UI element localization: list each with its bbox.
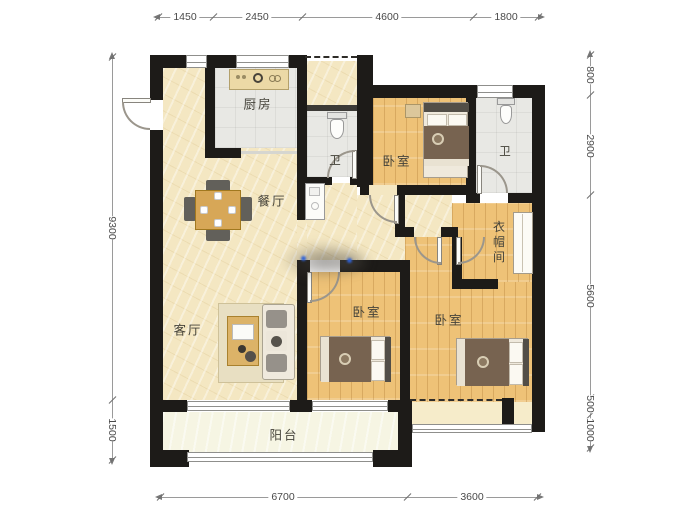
wall-topright-a — [357, 85, 477, 98]
bed-pillow — [448, 114, 467, 126]
dim-label: 1450 — [170, 11, 199, 23]
decor-bowl-icon — [245, 351, 256, 362]
dim-label: 1800 — [491, 11, 520, 23]
bed-pillow — [509, 342, 523, 363]
sofa-cushion-icon — [266, 354, 287, 372]
wall-bath1-top — [307, 105, 357, 111]
window-balcony — [187, 452, 373, 462]
bed-headboard — [385, 337, 391, 382]
dim-label: 5600 — [581, 284, 599, 307]
window-bay — [412, 424, 532, 433]
window-kitchen — [236, 55, 289, 68]
bed-icon — [456, 338, 528, 385]
dashed-opening-bay — [410, 399, 502, 401]
wall-balcony-top-b — [290, 400, 312, 412]
bedroom-right-label: 卧室 — [434, 310, 463, 329]
wall-topright-b — [513, 85, 545, 98]
wall-bedtop-bottom-b — [397, 185, 470, 195]
dim-label: 2900 — [581, 134, 599, 157]
wall-left-main — [150, 129, 163, 467]
wall-bay-stub — [502, 398, 514, 426]
bed-deco-pillow — [339, 353, 351, 365]
dim-label: 800 — [581, 66, 599, 84]
washbasin-drain-icon — [311, 202, 319, 210]
bed-blanket — [424, 126, 469, 159]
sofa-cushion-icon — [266, 310, 287, 328]
bed-icon — [320, 336, 390, 381]
wall-top-a — [150, 55, 186, 68]
dim-label: 4600 — [372, 11, 401, 23]
dim-label: 9300 — [103, 216, 121, 239]
dim-label: 6700 — [268, 491, 297, 503]
bedroom-top-door-gap — [369, 185, 397, 195]
wall-right-outer — [532, 98, 545, 432]
dim-label: 500 — [581, 395, 599, 413]
place-setting-icon — [228, 206, 236, 214]
bed-foot-stripe — [424, 159, 469, 166]
dining-chair-icon — [206, 229, 230, 241]
dim-label: 2450 — [242, 11, 271, 23]
bed-pillow — [371, 340, 385, 360]
bed-pillow — [427, 114, 447, 126]
bed-pillow — [509, 364, 523, 385]
watermark-dot — [347, 258, 352, 263]
wall-corridor-b — [441, 227, 458, 237]
bedroom-top-label: 卧室 — [382, 151, 411, 170]
toilet-icon — [500, 105, 512, 124]
wall-bath2-bottom-a — [466, 193, 480, 203]
wardrobe-rail-icon — [522, 214, 523, 272]
balcony-sliding-door — [187, 401, 290, 411]
place-setting-icon — [200, 206, 208, 214]
wall-bath1-right — [357, 55, 373, 187]
entry-door-arc — [122, 102, 150, 130]
wall-top-b — [207, 55, 236, 68]
washbasin-sink-icon — [309, 187, 320, 196]
dim-label: 3600 — [457, 491, 486, 503]
wardrobe-icon — [513, 212, 533, 274]
wall-balcony-corner-left — [150, 450, 189, 467]
watermark-dot — [301, 256, 306, 261]
wall-kitchen-bottom — [205, 148, 241, 158]
burner-icon — [253, 73, 263, 83]
bath1-label: 卫 — [329, 152, 341, 168]
wall-balcony-right — [398, 400, 412, 452]
dashed-opening-top — [305, 56, 357, 58]
place-setting-icon — [214, 219, 222, 227]
toilet-icon — [327, 112, 347, 119]
bed-foot-stripe — [457, 339, 465, 386]
wall-balcony-top-a — [163, 400, 187, 412]
wall-cloakroom-bottom — [452, 279, 498, 289]
faucet-dot-icon — [242, 75, 246, 79]
place-setting-icon — [214, 192, 222, 200]
toilet-icon — [330, 119, 344, 139]
entry-door-gap — [150, 100, 163, 130]
dim-line-top — [158, 17, 538, 18]
wall-corridor-a — [395, 227, 414, 237]
flue-nook-floor — [307, 61, 357, 105]
bed-deco-pillow — [477, 356, 489, 368]
wall-bedmid-bedright-divider — [400, 260, 410, 400]
dining-chair-icon — [240, 197, 252, 221]
sofa-pillow-icon — [271, 336, 282, 347]
bed-foot-stripe — [321, 337, 329, 382]
bed-icon — [423, 102, 468, 178]
window-top-left — [186, 55, 207, 68]
window-bath2 — [477, 85, 513, 98]
bed-headboard — [523, 339, 529, 386]
bath2-label: 卫 — [499, 143, 511, 159]
bed-deco-pillow — [432, 133, 444, 145]
wall-bedtop-bottom-a — [360, 185, 369, 195]
toilet-icon — [497, 98, 515, 105]
dining-label: 餐厅 — [257, 191, 286, 210]
wall-kitchen-left — [205, 68, 215, 158]
sink-icon — [274, 75, 281, 82]
wall-bath2-bottom-b — [508, 193, 545, 203]
living-label: 客厅 — [173, 320, 202, 339]
kitchen-label: 厨房 — [243, 94, 272, 113]
nightstand-icon — [405, 104, 421, 118]
dim-label: 1000 — [581, 418, 599, 441]
dim-label: 1500 — [103, 418, 121, 441]
decor-bowl-icon — [238, 345, 246, 353]
floor-plan: 厨房 卫 餐厅 卧室 卫 衣帽间 客厅 卧室 卧室 阳台 1450 2450 4… — [0, 0, 700, 525]
bed-headboard — [424, 103, 469, 112]
bed-pillow — [371, 361, 385, 381]
wall-balcony-corner-right — [373, 450, 412, 467]
window-bedroom-mid — [312, 401, 388, 411]
dim-line-right — [590, 55, 591, 448]
bedroom-mid-label: 卧室 — [352, 302, 381, 321]
faucet-dot-icon — [236, 75, 240, 79]
wall-living-bedmid-divider — [297, 272, 307, 400]
cloakroom-label: 衣帽间 — [491, 221, 508, 266]
kitchen-threshold — [241, 151, 297, 154]
bay-window-floor — [412, 402, 532, 424]
tray-icon — [232, 324, 254, 340]
balcony-label: 阳台 — [269, 425, 298, 444]
